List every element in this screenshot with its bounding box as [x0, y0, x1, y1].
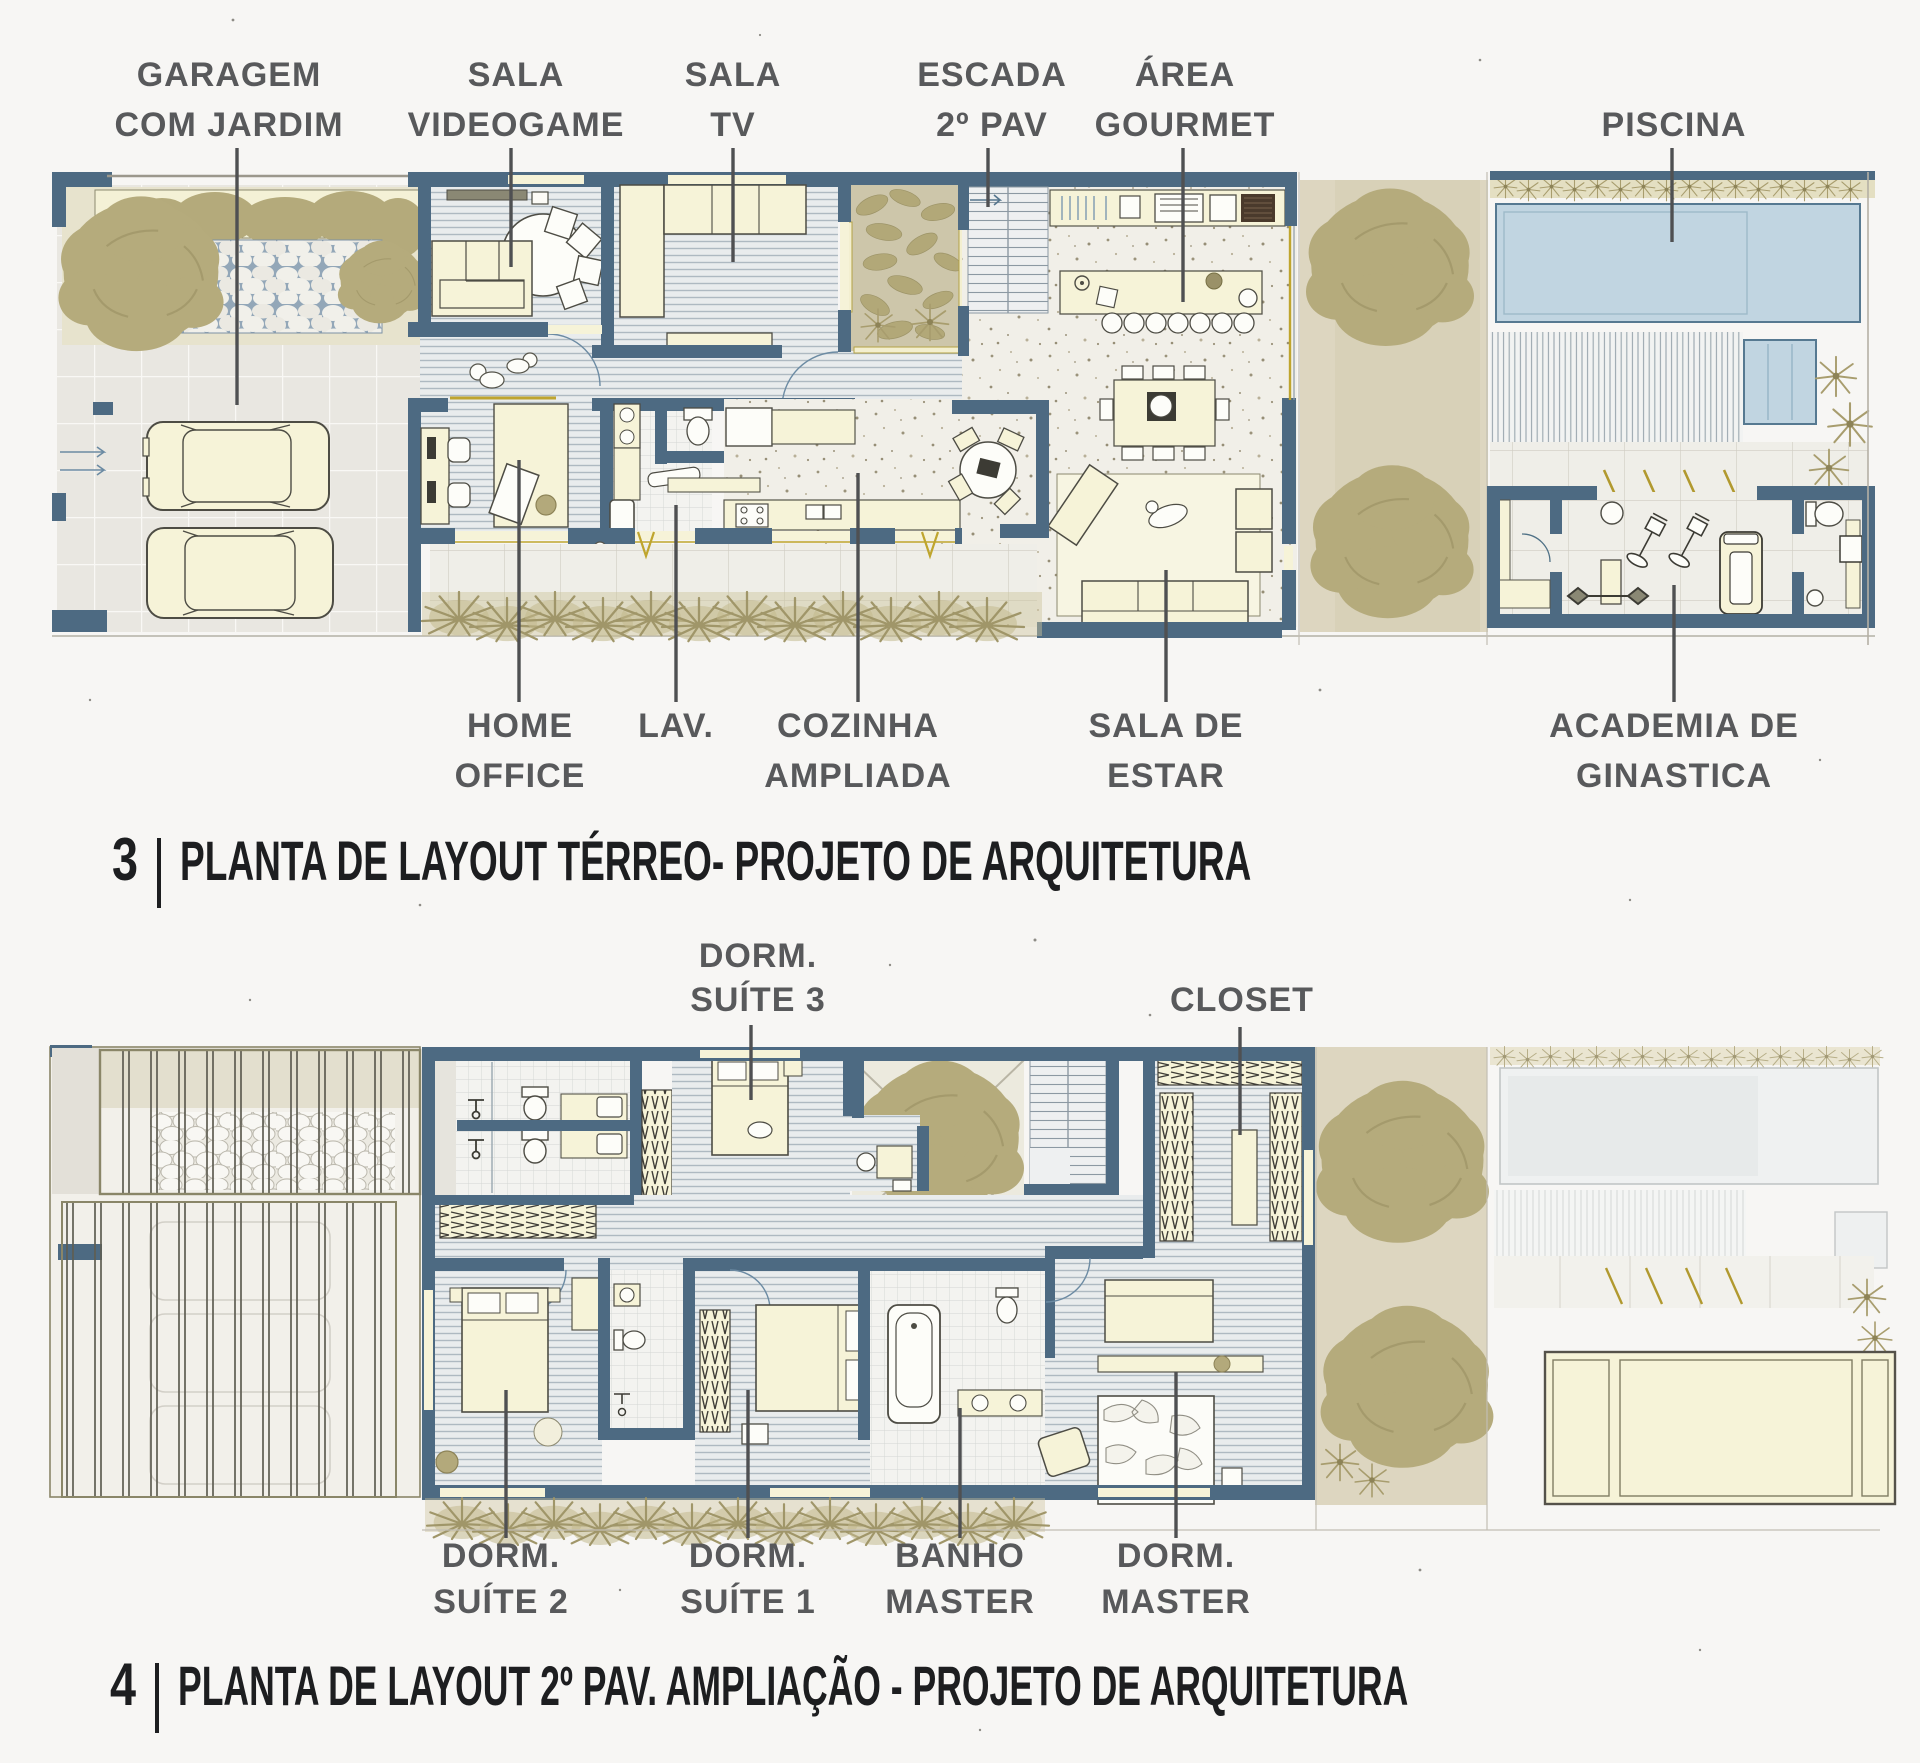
svg-text:GOURMET: GOURMET: [1095, 106, 1276, 144]
svg-text:ACADEMIA DE: ACADEMIA DE: [1549, 707, 1799, 745]
svg-text:DORM.: DORM.: [699, 937, 817, 975]
svg-text:SUÍTE 2: SUÍTE 2: [433, 1583, 568, 1621]
svg-text:VIDEOGAME: VIDEOGAME: [408, 106, 625, 144]
svg-text:HOME: HOME: [467, 707, 573, 745]
svg-text:MASTER: MASTER: [1101, 1583, 1251, 1621]
svg-text:ÁREA: ÁREA: [1135, 56, 1235, 94]
svg-text:AMPLIADA: AMPLIADA: [764, 757, 951, 795]
svg-text:GINASTICA: GINASTICA: [1576, 757, 1772, 795]
svg-text:TV: TV: [710, 106, 755, 144]
svg-text:3: 3: [112, 826, 138, 893]
svg-text:4: 4: [110, 1651, 136, 1718]
svg-text:MASTER: MASTER: [885, 1583, 1035, 1621]
svg-text:GARAGEM: GARAGEM: [137, 56, 322, 94]
svg-text:ESTAR: ESTAR: [1107, 757, 1225, 795]
svg-text:CLOSET: CLOSET: [1170, 981, 1314, 1019]
svg-text:2º PAV: 2º PAV: [936, 106, 1048, 144]
svg-text:ESCADA: ESCADA: [917, 56, 1067, 94]
svg-text:COM JARDIM: COM JARDIM: [114, 106, 343, 144]
svg-text:SALA DE: SALA DE: [1089, 707, 1244, 745]
svg-text:PISCINA: PISCINA: [1602, 106, 1747, 144]
svg-text:DORM.: DORM.: [442, 1537, 560, 1575]
svg-text:SUÍTE 1: SUÍTE 1: [680, 1583, 815, 1621]
svg-text:OFFICE: OFFICE: [455, 757, 586, 795]
svg-text:DORM.: DORM.: [1117, 1537, 1235, 1575]
svg-text:PLANTA DE LAYOUT TÉRREO- PROJ: PLANTA DE LAYOUT TÉRREO- PROJETO DE ARQU…: [180, 829, 1251, 893]
svg-text:PLANTA DE LAYOUT 2º PAV. AMPL: PLANTA DE LAYOUT 2º PAV. AMPLIAÇÃO - PRO…: [178, 1655, 1408, 1717]
svg-text:COZINHA: COZINHA: [777, 707, 939, 745]
svg-text:BANHO: BANHO: [895, 1537, 1025, 1575]
svg-text:DORM.: DORM.: [689, 1537, 807, 1575]
svg-text:SALA: SALA: [468, 56, 565, 94]
svg-text:LAV.: LAV.: [638, 707, 714, 745]
svg-text:SUÍTE 3: SUÍTE 3: [690, 981, 825, 1019]
svg-text:SALA: SALA: [685, 56, 782, 94]
